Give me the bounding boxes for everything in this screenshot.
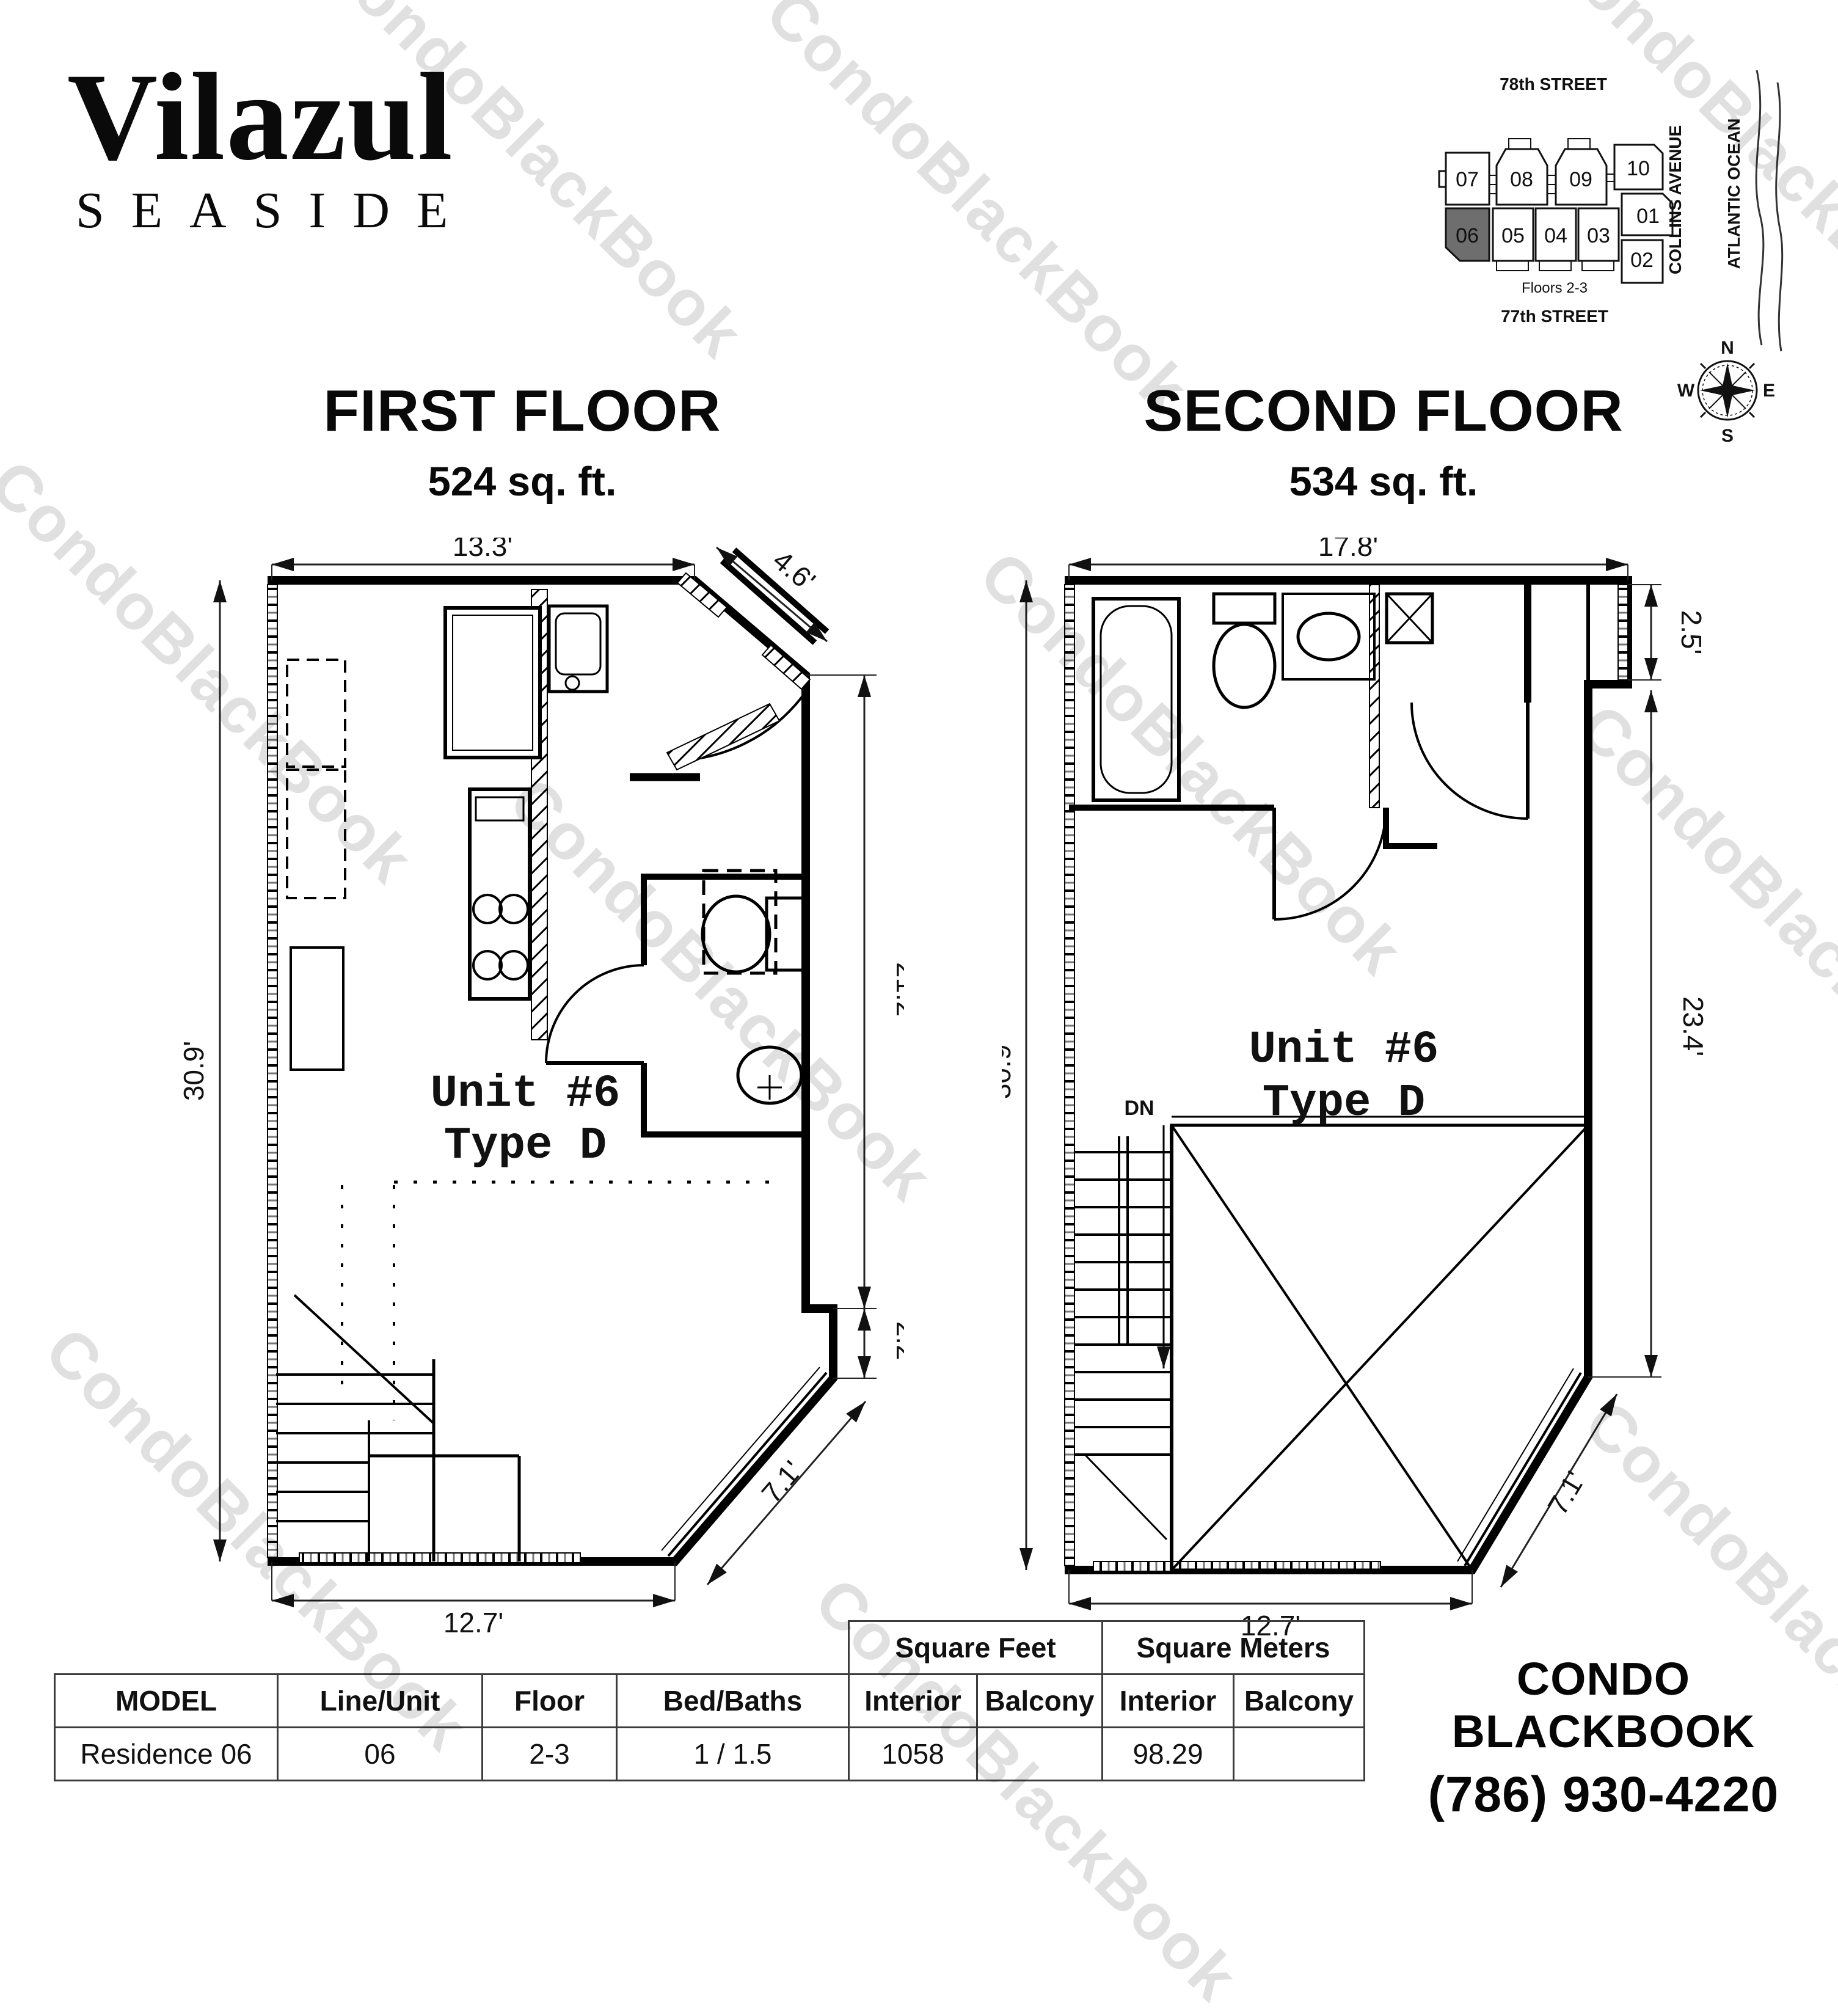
atlantic-ocean-label: ATLANTIC OCEAN (1724, 119, 1743, 269)
second-floor-title: SECOND FLOOR (1002, 378, 1765, 445)
col-model: MODEL (55, 1675, 278, 1728)
compass-n: N (1721, 338, 1734, 358)
fp2-dim-notch: 2.5' (1676, 610, 1707, 655)
logo-subtitle: SEASIDE (76, 181, 495, 240)
first-floor-plan: Unit #6 Type D 13.3' 4.6' 30.9' 21.2' 2.… (140, 538, 904, 1637)
fp1-dim-step: 2.2' (891, 1321, 904, 1366)
unit-06-label: 06 (1456, 224, 1479, 247)
cell-sqft-interior: 1058 (849, 1728, 977, 1781)
fp1-kitchen (445, 590, 607, 1040)
fp1-type-label: Type D (444, 1120, 607, 1172)
col-floor: Floor (483, 1675, 617, 1728)
unit-03-label: 03 (1587, 224, 1610, 247)
fp2-dim-right: 23.4' (1677, 996, 1709, 1056)
floors-note: Floors 2-3 (1522, 280, 1588, 296)
unit-07-label: 07 (1456, 168, 1479, 191)
cell-sqm-balcony (1234, 1728, 1365, 1781)
contact-block: CONDO BLACKBOOK (786) 930-4220 (1393, 1653, 1814, 1824)
fp2-type-label: Type D (1263, 1078, 1425, 1129)
fp2-dim-left: 30.9' (1002, 1039, 1016, 1099)
fp2-bathroom (1069, 585, 1437, 919)
cell-sqm-interior: 98.29 (1103, 1728, 1234, 1781)
fp1-closet (630, 704, 779, 973)
fp2-bedroom-door (1412, 580, 1528, 819)
contact-phone: (786) 930-4220 (1393, 1766, 1814, 1824)
unit-01-label: 01 (1636, 205, 1660, 228)
second-floor-plan: DN Unit #6 Type D 17.8' 2.5' 23.4' 30.9'… (1002, 538, 1765, 1637)
fp1-stairs (276, 1295, 519, 1561)
contact-name: CONDO BLACKBOOK (1393, 1653, 1814, 1758)
logo-name: Vilazul (67, 58, 495, 177)
unit-02-label: 02 (1630, 249, 1654, 272)
table-group-header-row: Square Feet Square Meters (55, 1621, 1365, 1675)
fp1-dotted-lines (342, 1182, 773, 1420)
cell-line-unit: 06 (278, 1728, 483, 1781)
col-sqft-interior: Interior (849, 1675, 977, 1728)
watermark: CondoBlackBook (751, 0, 1203, 428)
first-floor-title: FIRST FLOOR (140, 378, 904, 445)
fp2-stair-dn-label: DN (1124, 1097, 1154, 1120)
fp2-open-to-below (1172, 1117, 1588, 1570)
unit-08-label: 08 (1510, 168, 1533, 191)
fp2-dim-chamfer: 7.1' (1541, 1466, 1591, 1520)
unit-spec-table: Square Feet Square Meters MODEL Line/Uni… (54, 1620, 1365, 1781)
unit-04-label: 04 (1544, 224, 1567, 247)
table-spacer (55, 1621, 849, 1675)
street-top-label: 78th STREET (1500, 75, 1607, 93)
fp2-dim-top: 17.8' (1318, 538, 1378, 562)
fp2-unit-label: Unit #6 (1249, 1024, 1439, 1076)
fp1-dim-top: 13.3' (453, 538, 512, 562)
shoreline (1756, 70, 1782, 351)
fp1-pantry (287, 660, 345, 1070)
col-sqm-balcony: Balcony (1234, 1675, 1365, 1728)
table-header-row: MODEL Line/Unit Floor Bed/Baths Interior… (55, 1675, 1365, 1728)
first-floor-header: FIRST FLOOR 524 sq. ft. (140, 378, 904, 505)
unit-05-label: 05 (1501, 224, 1525, 247)
fp2-walls (1065, 580, 1628, 1571)
unit-09-label: 09 (1569, 168, 1592, 191)
cell-model: Residence 06 (55, 1728, 278, 1781)
fp2-stairs (1074, 1125, 1172, 1570)
cell-floor: 2-3 (483, 1728, 617, 1781)
collins-avenue-label: COLLINS AVENUE (1666, 125, 1685, 274)
col-sqm-interior: Interior (1103, 1675, 1234, 1728)
sqft-group-header: Square Feet (849, 1621, 1103, 1675)
fp1-dim-left: 30.9' (178, 1041, 210, 1101)
second-floor-header: SECOND FLOOR 534 sq. ft. (1002, 378, 1765, 505)
fp1-unit-label: Unit #6 (431, 1068, 621, 1120)
cell-sqft-balcony (977, 1728, 1103, 1781)
col-line-unit: Line/Unit (278, 1675, 483, 1728)
fp2-closet (1387, 594, 1432, 643)
table-row: Residence 06 06 2-3 1 / 1.5 1058 98.29 (55, 1728, 1365, 1781)
first-floor-area: 524 sq. ft. (140, 458, 904, 505)
brand-logo: Vilazul SEASIDE (67, 58, 495, 240)
col-sqft-balcony: Balcony (977, 1675, 1103, 1728)
cell-bed-baths: 1 / 1.5 (617, 1728, 849, 1781)
unit-10-label: 10 (1627, 157, 1650, 180)
fp1-dim-right: 21.2' (891, 962, 904, 1022)
second-floor-area: 534 sq. ft. (1002, 458, 1765, 505)
col-bed-baths: Bed/Baths (617, 1675, 849, 1728)
sqm-group-header: Square Meters (1103, 1621, 1365, 1675)
street-bottom-label: 77th STREET (1501, 307, 1608, 326)
